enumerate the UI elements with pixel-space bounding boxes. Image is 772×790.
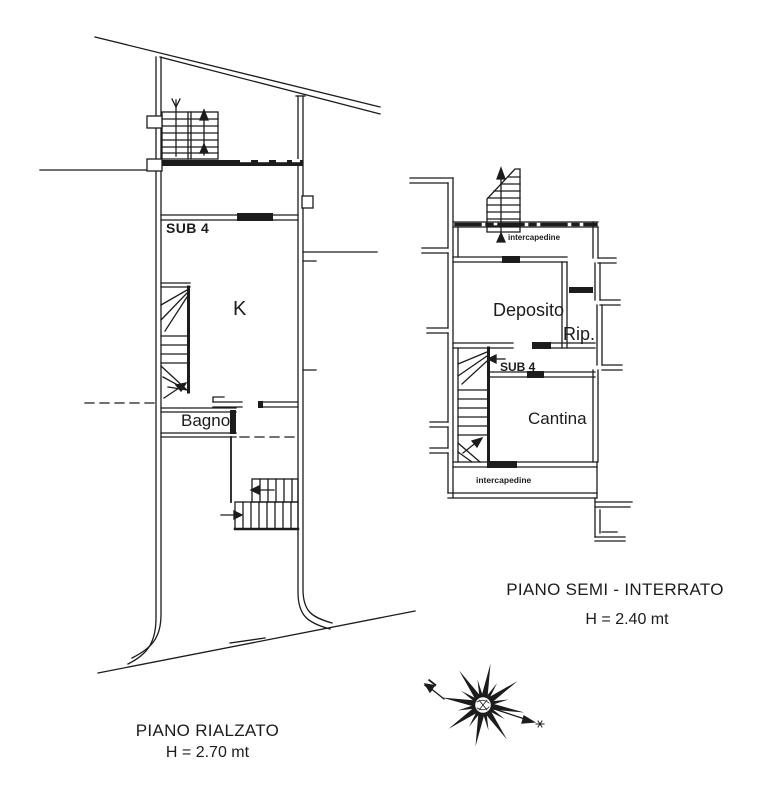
plan-title-seminterrato: PIANO SEMI - INTERRATO: [505, 581, 725, 598]
room-label-bathroom: Bagno: [181, 412, 230, 429]
stair-lower-seminterrato: [458, 348, 489, 462]
room-label-cantina: Cantina: [528, 410, 587, 427]
stair-interior-rialzato: [161, 283, 190, 398]
bearing-arrow-icon: [522, 716, 534, 723]
room-label-sub4-rialzato: SUB 4: [166, 221, 209, 235]
stair-top-rialzato: [162, 99, 218, 159]
room-label-kitchen: K: [233, 299, 246, 319]
plan-title-rialzato: PIANO RIALZATO: [100, 722, 315, 739]
stair-up-arrow-icon: [497, 168, 505, 179]
stair-direction-arrow-icon: [472, 438, 482, 447]
floor-plan-linework: N: [0, 0, 772, 790]
stair-top-seminterrato: [487, 168, 520, 242]
room-label-ripostiglio: Rip.: [563, 325, 595, 343]
floor-plan-sheet: N SUB 4 K Bagno intercapedine Deposito R…: [0, 0, 772, 790]
plan-height-seminterrato: H = 2.40 mt: [517, 612, 737, 628]
stair-external-rialzato: [221, 479, 298, 529]
floor-plan-seminterrato: [410, 168, 632, 541]
floor-plan-rialzato: [40, 37, 415, 673]
compass-rose: N: [421, 664, 544, 747]
room-label-deposito: Deposito: [493, 301, 564, 319]
room-label-intercapedine-top: intercapedine: [508, 234, 560, 242]
room-label-intercapedine-bottom: intercapedine: [476, 476, 531, 485]
room-label-sub4-seminterrato: SUB 4: [500, 361, 535, 373]
plan-height-rialzato: H = 2.70 mt: [100, 745, 315, 761]
bearing-star-icon: [536, 721, 544, 727]
stair-arrow-icon: [234, 511, 242, 519]
